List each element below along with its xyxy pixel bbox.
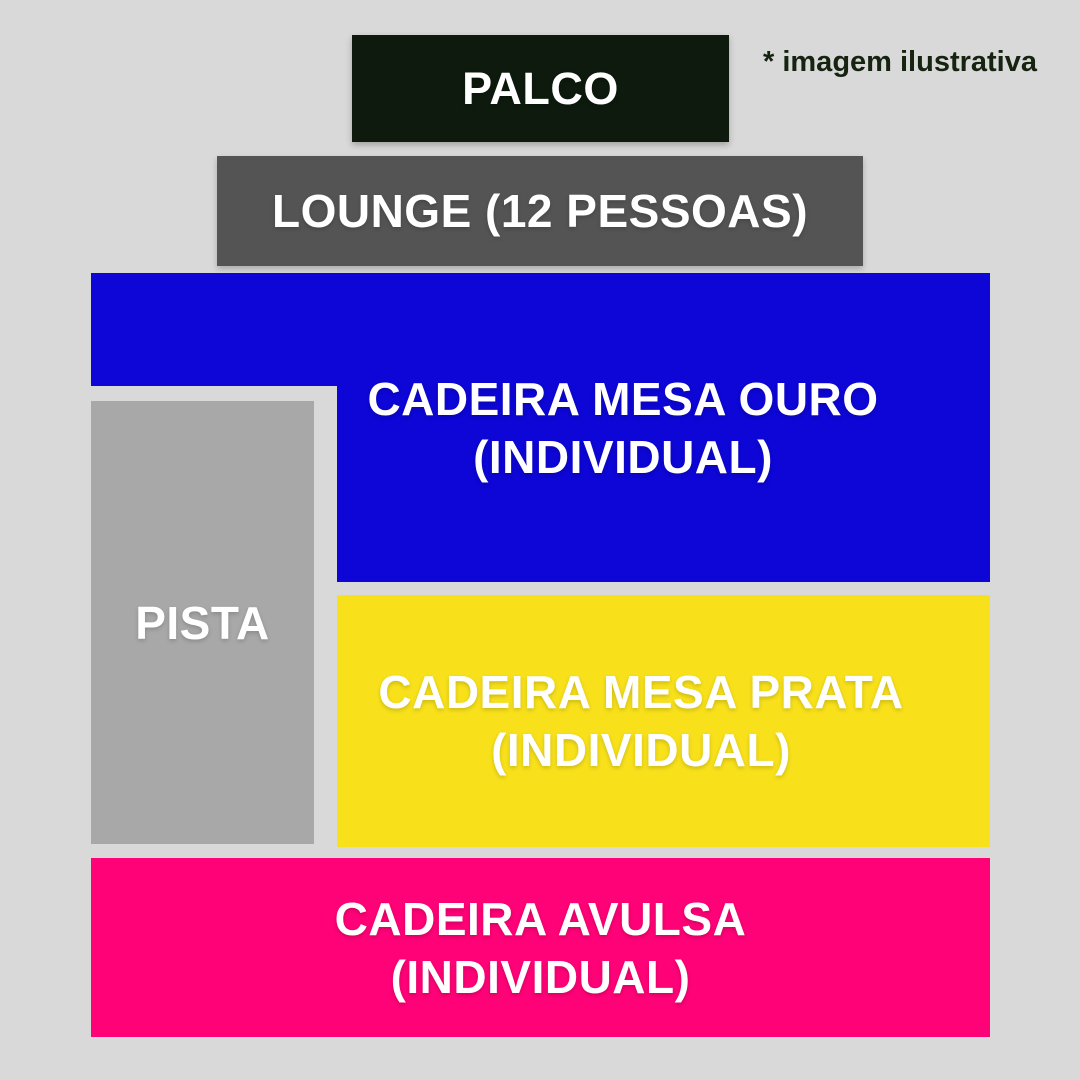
zone-cadeira-mesa-ouro-label: CADEIRA MESA OURO (INDIVIDUAL) [256,273,990,582]
zone-cadeira-mesa-prata-label: CADEIRA MESA PRATA (INDIVIDUAL) [292,595,990,847]
zone-lounge-label: LOUNGE (12 PESSOAS) [272,184,808,238]
zone-cadeira-mesa-ouro-label-line2: (INDIVIDUAL) [473,428,773,486]
seating-map-canvas: PALCO * imagem ilustrativa LOUNGE (12 PE… [0,0,1080,1080]
zone-palco: PALCO [352,35,729,142]
zone-pista-label: PISTA [135,596,270,650]
zone-cadeira-mesa-prata-label-line1: CADEIRA MESA PRATA [378,663,903,721]
zone-cadeira-avulsa-label-line1: CADEIRA AVULSA [335,890,747,948]
zone-cadeira-mesa-ouro-label-line1: CADEIRA MESA OURO [367,370,878,428]
zone-palco-label: PALCO [462,63,619,115]
zone-cadeira-avulsa: CADEIRA AVULSA (INDIVIDUAL) [91,858,990,1037]
zone-lounge: LOUNGE (12 PESSOAS) [217,156,863,266]
zone-pista: PISTA [91,401,314,844]
zone-cadeira-mesa-prata-label-line2: (INDIVIDUAL) [491,721,791,779]
illustrative-note: * imagem ilustrativa [763,44,1037,80]
zone-cadeira-avulsa-label-line2: (INDIVIDUAL) [391,948,691,1006]
